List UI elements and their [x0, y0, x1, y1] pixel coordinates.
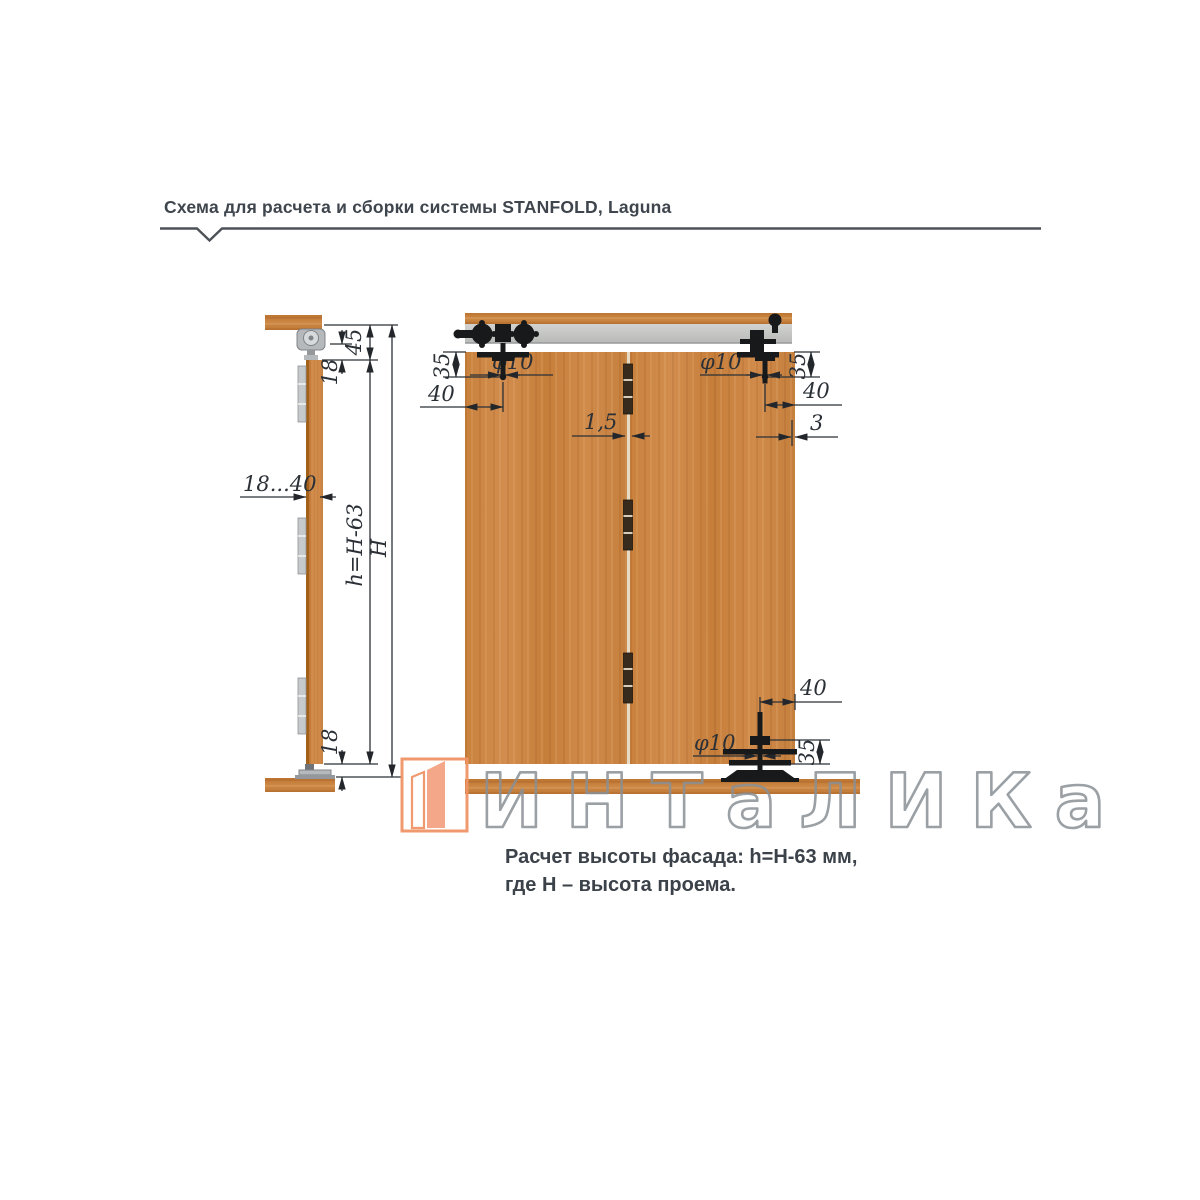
- title-underline: [160, 229, 1041, 241]
- dim-top-gap: 18: [318, 359, 342, 386]
- top-pivot-bracket: [737, 314, 782, 384]
- diagram-overlay: 45 18 18...40 h=H-63 H 18 35 40 φ10 1,5 …: [0, 0, 1200, 1200]
- side-view-top-roller: [297, 329, 325, 360]
- dim-door-thickness: 18...40: [243, 472, 316, 496]
- dim-top-right-diameter: φ10: [700, 350, 741, 374]
- caption-line-1: Расчет высоты фасада: h=H-63 мм,: [505, 843, 857, 871]
- watermark-text: ИНТаЛИКа: [480, 757, 1128, 845]
- dim-top-right-40: 40: [802, 379, 830, 403]
- caption: Расчет высоты фасада: h=H-63 мм, где H –…: [505, 843, 857, 899]
- caption-line-2: где H – высота проема.: [505, 871, 857, 899]
- dim-bottom-gap: 18: [318, 729, 342, 756]
- dim-right-edge-gap: 3: [810, 411, 823, 435]
- page: Схема для расчета и сборки системы STANF…: [0, 0, 1200, 1200]
- dim-door-height: h=H-63: [343, 503, 367, 586]
- front-view-hinges: [624, 364, 633, 703]
- dim-top-clearance: 45: [342, 329, 366, 357]
- dim-panel-gap: 1,5: [584, 410, 617, 434]
- dim-top-right-35: 35: [786, 353, 810, 380]
- dim-top-left-35: 35: [430, 353, 454, 380]
- watermark-logo: [402, 759, 467, 831]
- dim-opening-height: H: [367, 538, 391, 558]
- dim-top-left-40: 40: [427, 382, 455, 406]
- side-view-bottom-pivot: [295, 764, 335, 779]
- side-view-hinges: [298, 366, 306, 734]
- dim-bottom-right-40: 40: [799, 676, 827, 700]
